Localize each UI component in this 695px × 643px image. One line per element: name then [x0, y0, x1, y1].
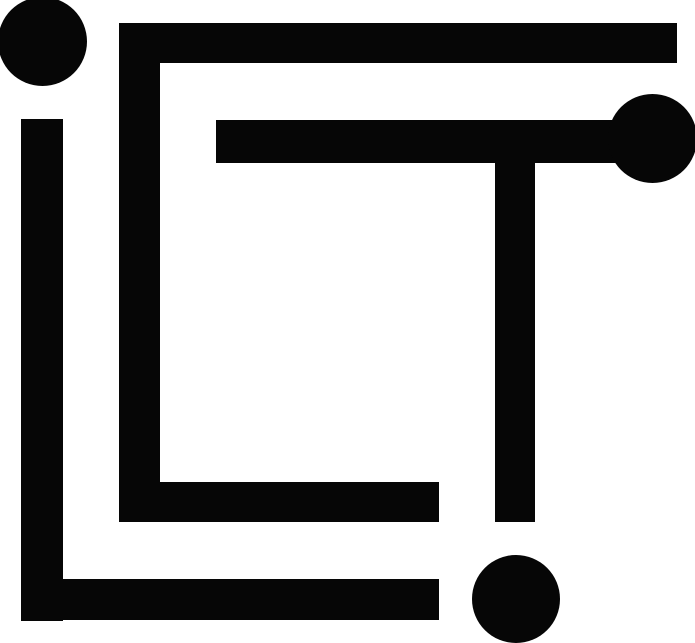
letter-l-bottom-bar — [21, 579, 439, 620]
letter-t-stem-bar — [495, 120, 535, 522]
letter-t-end-dot-icon — [608, 94, 695, 183]
bottom-right-dot-icon — [472, 555, 560, 643]
letter-c-bottom-bar — [119, 482, 439, 522]
letter-t-cross-bar — [216, 120, 646, 163]
letter-i-dot-icon — [0, 0, 87, 86]
letter-c-vertical-bar — [119, 23, 160, 522]
ict-logo — [0, 0, 695, 643]
letter-i-l-stem-bar — [21, 119, 63, 621]
letter-c-top-bar — [119, 23, 677, 63]
